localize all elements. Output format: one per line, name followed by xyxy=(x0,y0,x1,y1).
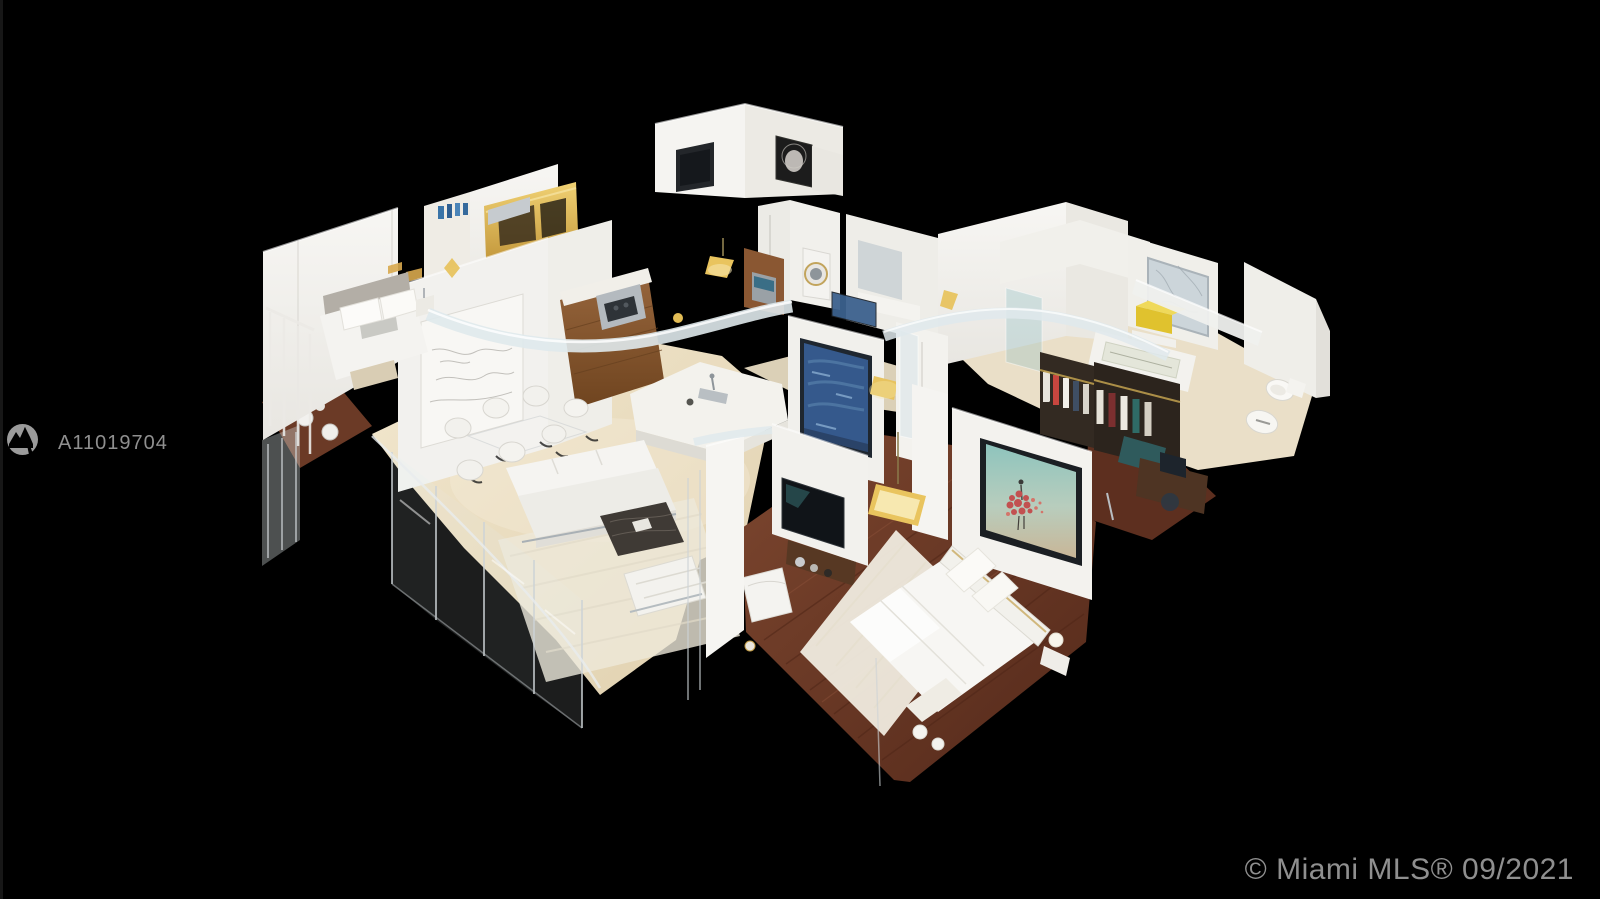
balcony-chair xyxy=(322,424,338,440)
decor-vase xyxy=(824,569,832,577)
mls-logo-icon xyxy=(6,423,40,463)
sconce-glow xyxy=(869,381,899,399)
listing-photo: A11019704 © Miami MLS® 09/2021 xyxy=(0,0,1600,899)
washer-drum xyxy=(810,268,822,280)
marilyn-face xyxy=(785,150,803,172)
island-decor xyxy=(687,399,694,406)
foot-sculpture xyxy=(932,738,944,750)
vanity-chair xyxy=(1161,493,1179,511)
mls-id-text: A11019704 xyxy=(58,432,168,455)
gold-pendant-small xyxy=(673,313,683,323)
burner xyxy=(624,303,629,308)
decor-sphere xyxy=(795,557,805,567)
right-outer-wall-slant xyxy=(1316,299,1330,398)
dollhouse-3d-model xyxy=(0,0,1600,899)
decor-sphere xyxy=(810,564,818,572)
bar-unit-opening xyxy=(540,198,566,238)
faucet-head xyxy=(710,374,715,379)
watermark: A11019704 xyxy=(6,423,168,463)
floor-decor xyxy=(745,641,755,651)
burner xyxy=(614,306,619,311)
sphere-lamp xyxy=(1049,633,1063,647)
near-wall-pillar xyxy=(706,436,744,658)
copyright-text: © Miami MLS® 09/2021 xyxy=(1245,853,1574,887)
tv-screen-top xyxy=(680,149,710,186)
pendant-glow xyxy=(708,264,732,276)
shower-glass xyxy=(1006,288,1042,372)
foot-sculpture xyxy=(913,725,927,739)
